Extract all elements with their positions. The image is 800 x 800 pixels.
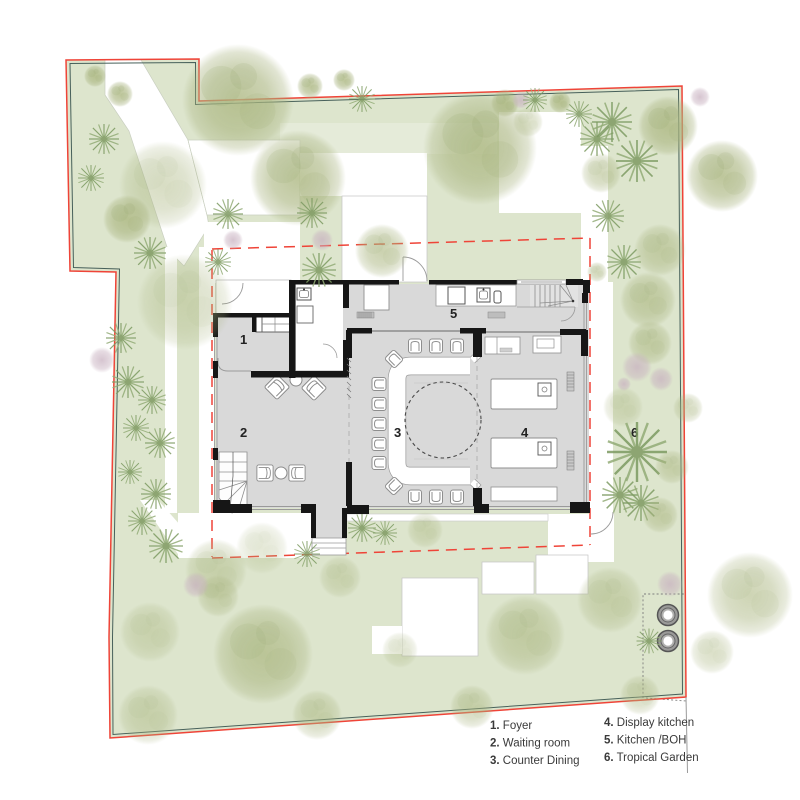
svg-text:3: 3 (394, 425, 401, 440)
svg-text:4: 4 (521, 425, 529, 440)
svg-text:5: 5 (450, 306, 457, 321)
svg-text:1. Foyer: 1. Foyer (490, 720, 532, 732)
svg-text:4. Display kitchen: 4. Display kitchen (604, 717, 694, 729)
svg-text:5. Kitchen /BOH: 5. Kitchen /BOH (604, 735, 686, 747)
svg-text:3. Counter Dining: 3. Counter Dining (490, 755, 580, 767)
svg-text:2. Waiting room: 2. Waiting room (490, 738, 570, 750)
svg-text:6. Tropical Garden: 6. Tropical Garden (604, 752, 699, 764)
svg-text:2: 2 (240, 425, 247, 440)
svg-text:1: 1 (240, 332, 247, 347)
